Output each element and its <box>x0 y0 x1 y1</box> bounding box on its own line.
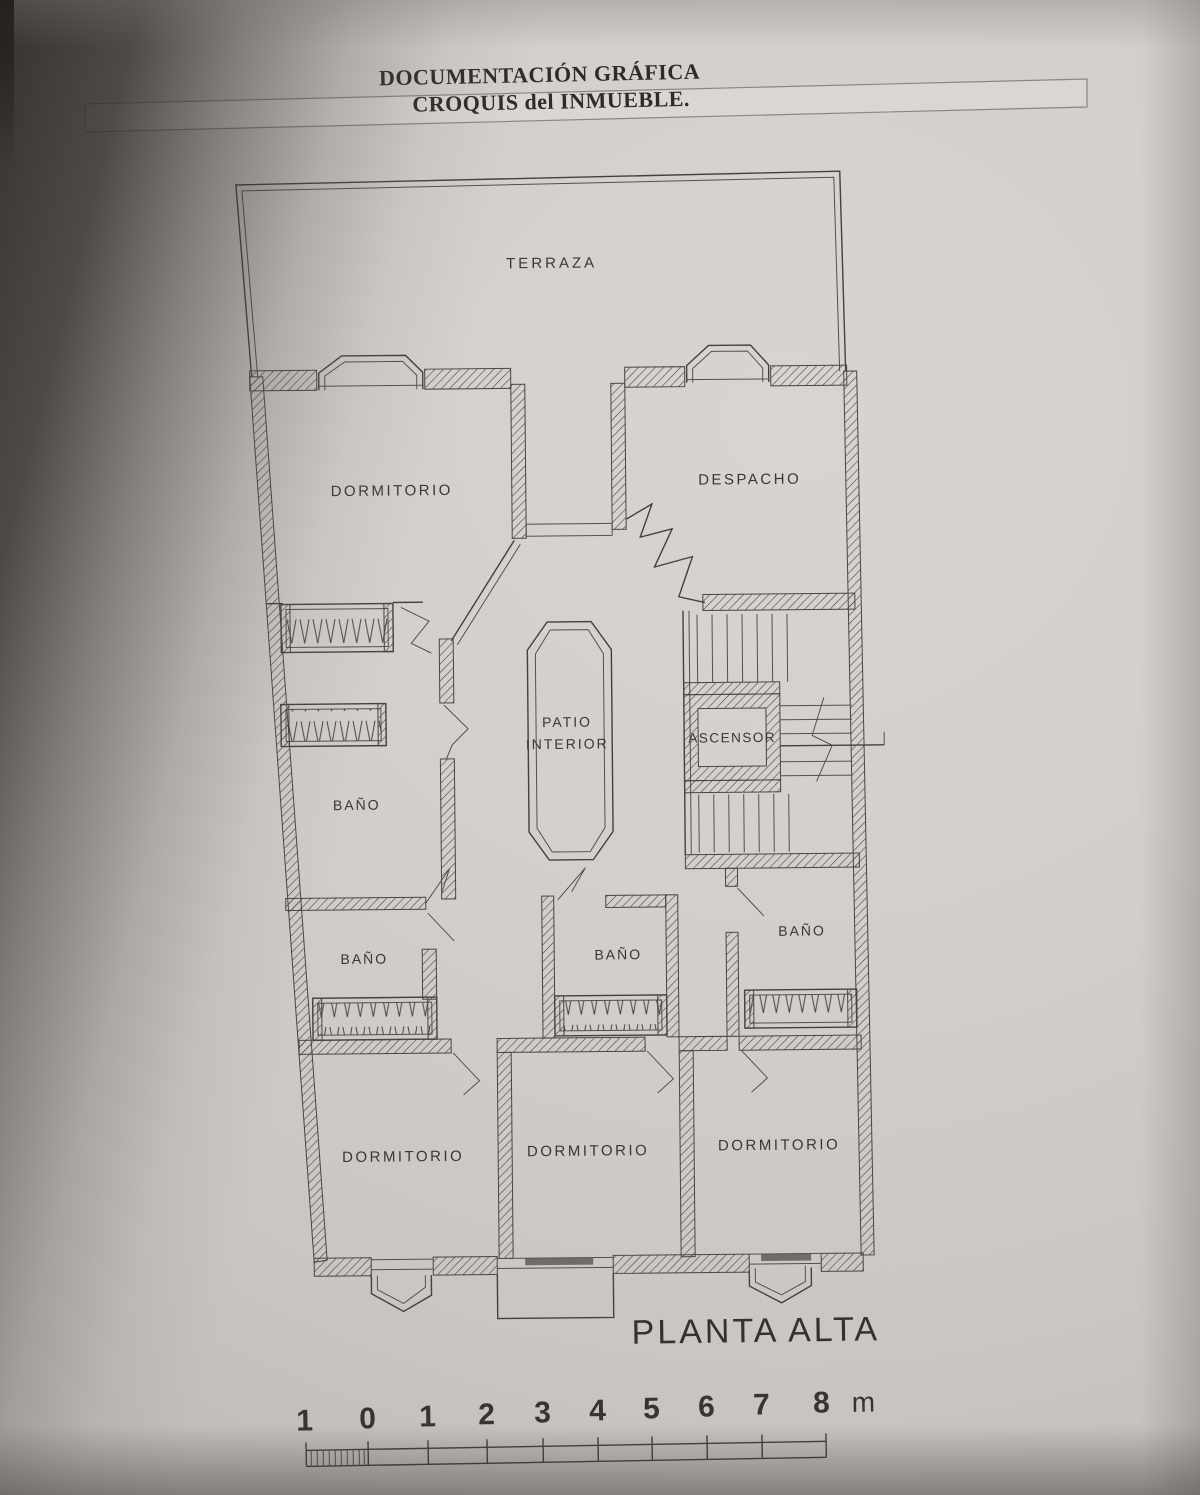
bano-left-upper-walls <box>439 639 469 899</box>
wardrobe-bano-left <box>281 704 386 747</box>
bano-left-lower-door-swing <box>428 913 454 941</box>
top-apartment-wall <box>249 344 846 391</box>
room-label-bano-left-lower: BAÑO <box>340 951 388 967</box>
stair-bottom-wall <box>685 853 859 869</box>
wardrobe-dorm-bottom-left <box>313 997 437 1040</box>
scale-tick-label: 0 <box>359 1402 376 1435</box>
room-label-patio-line2: INTERIOR <box>526 735 609 752</box>
dorm-door-leaf <box>401 607 431 653</box>
bay-window-left <box>318 355 422 390</box>
dorm-br-door-leaf <box>741 1050 767 1092</box>
room-label-terraza: TERRAZA <box>506 255 597 273</box>
stair-treads-upper <box>697 614 788 683</box>
bano-left-door-leaf <box>444 705 469 759</box>
stair-break-symbol <box>812 697 833 781</box>
outer-wall-left <box>250 376 328 1263</box>
terrace-outline <box>236 171 846 377</box>
room-label-ascensor: ASCENSOR <box>688 730 776 746</box>
outer-wall-right <box>844 371 874 1255</box>
bay-window-bottom-right <box>749 1266 811 1304</box>
light-shaft <box>511 383 626 538</box>
dorm-bl-door-leaf <box>453 1053 479 1095</box>
scale-tick-label: 1 <box>296 1404 313 1437</box>
room-label-dormitorio-top: DORMITORIO <box>331 482 453 500</box>
plan-body: TERRAZA DORMITORIO DESPACHO PATIO INTERI… <box>236 171 890 1321</box>
bano-middle-door-leaf <box>557 868 585 900</box>
bano-left-lower-walls <box>285 869 454 1001</box>
balcony-bottom-middle <box>497 1273 613 1318</box>
despacho-doorway-zigzag <box>626 504 705 604</box>
hall-diagonal-wall-inner <box>456 544 521 645</box>
room-label-patio-line1: PATIO <box>542 714 592 730</box>
room-label-bano-left-upper: BAÑO <box>333 797 381 813</box>
dorm-bm-door-leaf <box>647 1051 673 1093</box>
scale-tick-label: 8 <box>813 1386 830 1419</box>
scale-tick-label: 5 <box>643 1392 660 1425</box>
plan-title: PLANTA ALTA <box>631 1310 880 1351</box>
scanned-floor-plan-page: DOCUMENTACIÓN GRÁFICA CROQUIS del INMUEB… <box>0 0 1200 1495</box>
scale-tick-label: 4 <box>589 1394 607 1427</box>
wardrobe-dorm-bottom-right <box>745 989 857 1028</box>
scale-unit-label: m <box>851 1386 875 1417</box>
scale-bar-ruler <box>306 1433 826 1466</box>
scale-tick-label: 6 <box>698 1390 715 1423</box>
bano-right-door-swing <box>738 888 764 916</box>
scale-bar-hatch <box>311 1449 364 1466</box>
room-label-dormitorio-bl: DORMITORIO <box>342 1148 464 1166</box>
dorm-divider-right <box>679 1051 695 1257</box>
scale-tick-label: 2 <box>478 1398 495 1431</box>
document-title: DOCUMENTACIÓN GRÁFICA <box>379 59 701 91</box>
stair-treads-right <box>780 697 885 782</box>
scale-tick-label: 3 <box>534 1396 551 1429</box>
room-label-bano-right: BAÑO <box>778 922 826 938</box>
room-label-dormitorio-bm: DORMITORIO <box>527 1142 649 1160</box>
dorm-divider-left <box>497 1052 513 1258</box>
room-label-dormitorio-br: DORMITORIO <box>718 1136 840 1154</box>
bottom-dorm-top-wall <box>299 1035 862 1096</box>
hall-diagonal-wall <box>450 540 515 641</box>
wardrobe-dorm-bottom-middle <box>555 995 667 1036</box>
wall-below-despacho <box>703 593 855 610</box>
stair-treads-lower <box>699 794 790 853</box>
room-label-despacho: DESPACHO <box>698 471 801 489</box>
room-label-bano-middle: BAÑO <box>594 946 642 962</box>
wardrobe-dormitorio-top <box>281 604 393 653</box>
floor-plan-drawing: DOCUMENTACIÓN GRÁFICA CROQUIS del INMUEB… <box>0 0 1200 1495</box>
bay-window-right <box>686 345 768 383</box>
bottom-facade <box>314 1253 864 1320</box>
scale-bar: 1 0 1 2 3 4 5 6 7 8 m <box>296 1385 876 1466</box>
bay-window-bottom-left <box>371 1275 431 1312</box>
document-header: DOCUMENTACIÓN GRÁFICA CROQUIS del INMUEB… <box>85 59 1087 132</box>
scale-tick-label: 7 <box>753 1388 770 1421</box>
scale-tick-label: 1 <box>419 1400 436 1433</box>
